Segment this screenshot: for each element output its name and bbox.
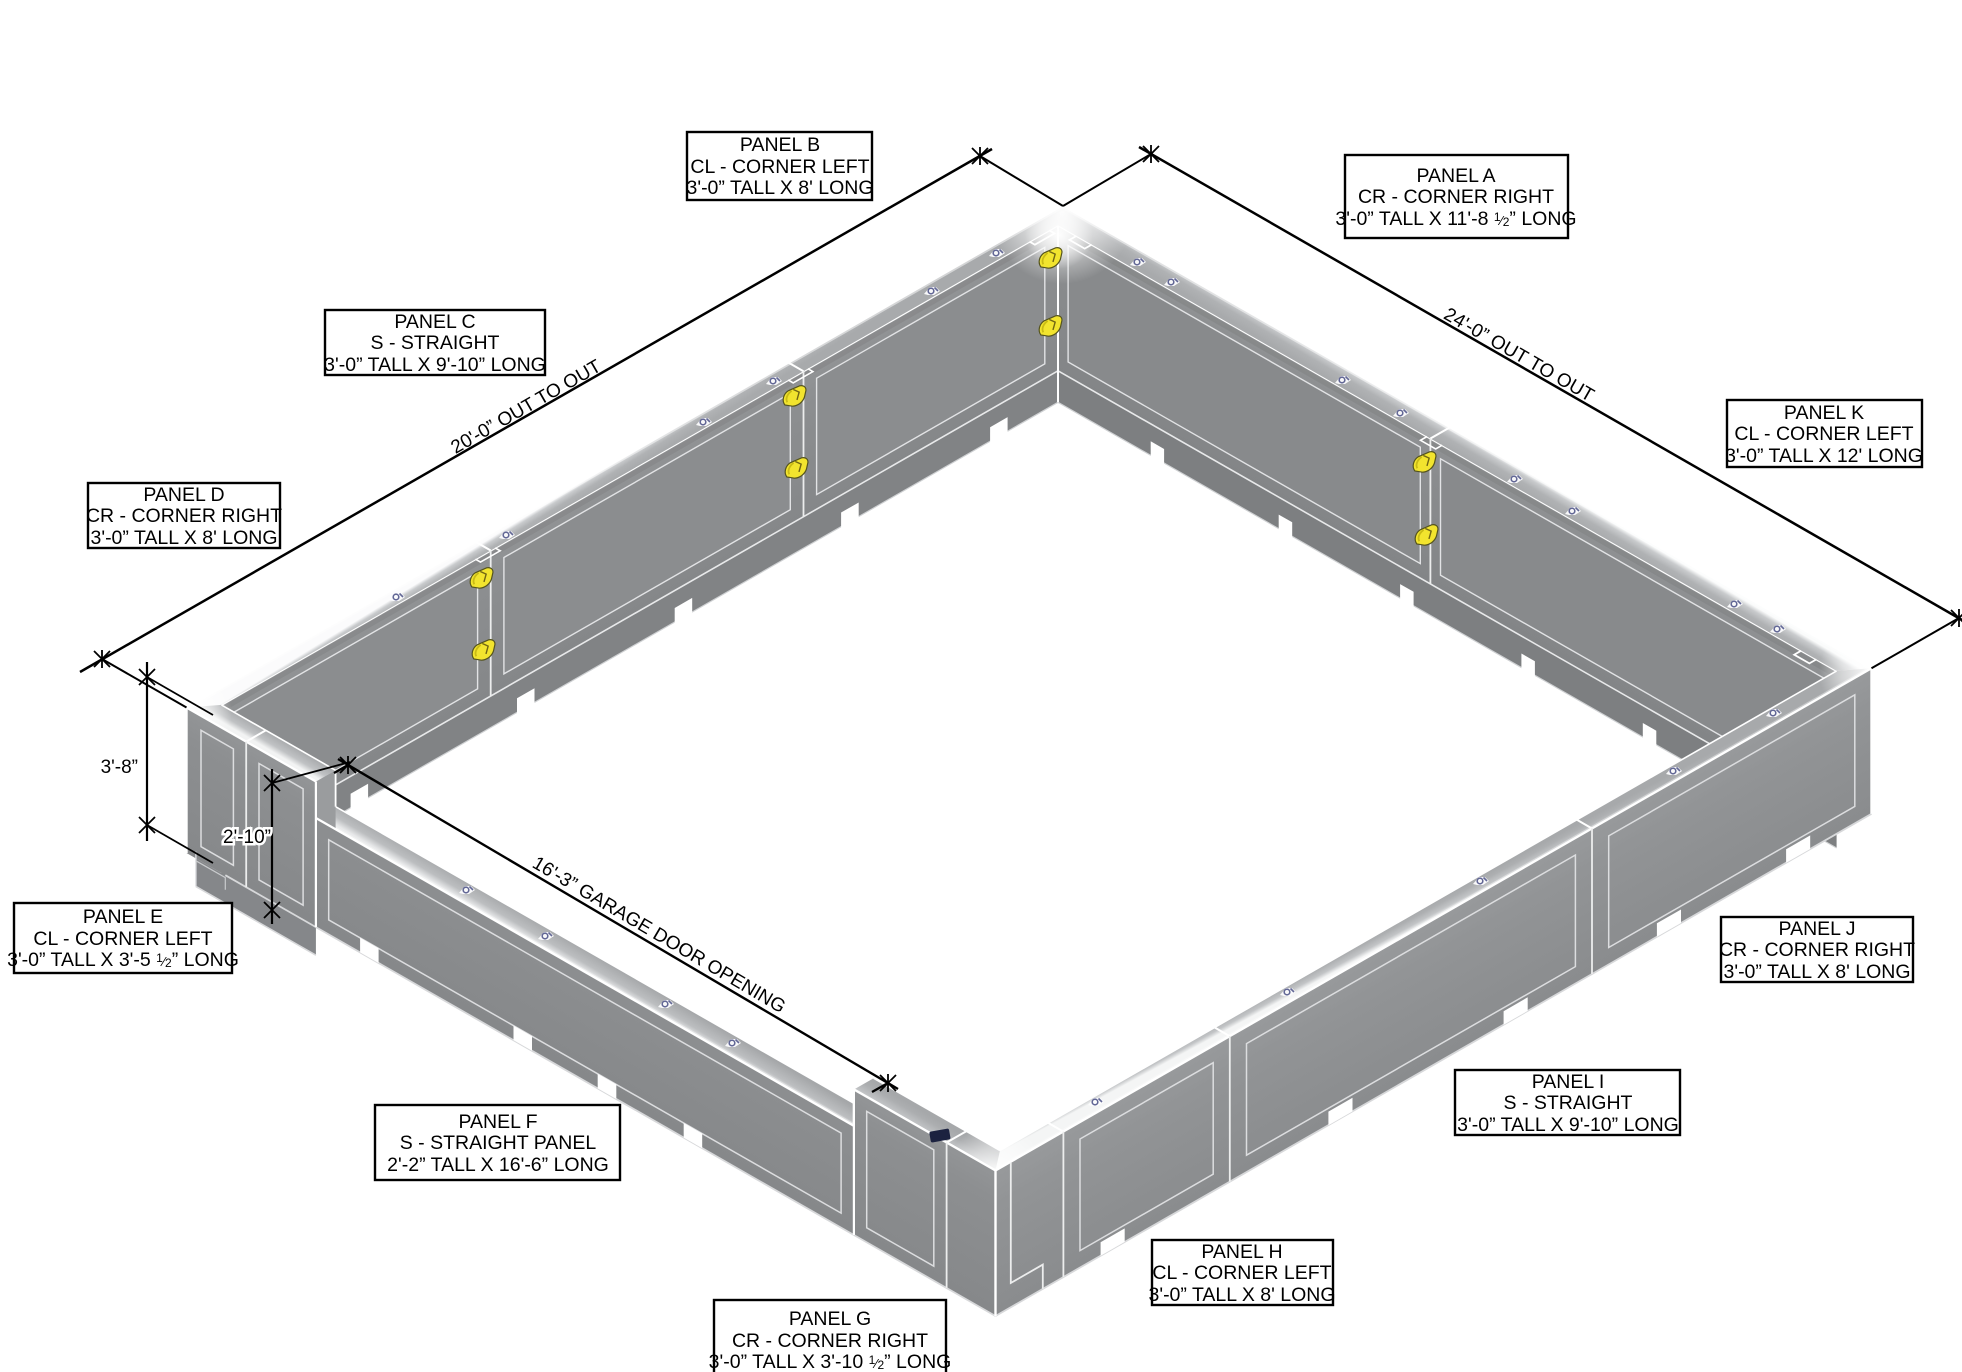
svg-text:S - STRAIGHT: S - STRAIGHT [1504, 1092, 1633, 1114]
svg-text:3'-0” TALL X 12' LONG: 3'-0” TALL X 12' LONG [1725, 445, 1923, 467]
svg-text:PANEL E: PANEL E [83, 906, 163, 928]
svg-text:PANEL K: PANEL K [1784, 402, 1864, 424]
svg-text:3'-0” TALL X 8' LONG: 3'-0” TALL X 8' LONG [91, 527, 278, 549]
svg-text:3'-0” TALL X 8' LONG: 3'-0” TALL X 8' LONG [1724, 961, 1911, 983]
svg-text:PANEL J: PANEL J [1779, 918, 1856, 940]
svg-text:3'-0” TALL X 3'-10 1⁄2” LONG: 3'-0” TALL X 3'-10 1⁄2” LONG [709, 1351, 952, 1372]
svg-text:2'-2” TALL X 16'-6” LONG: 2'-2” TALL X 16'-6” LONG [387, 1154, 609, 1176]
svg-text:3'-0” TALL X 9'-10” LONG: 3'-0” TALL X 9'-10” LONG [1457, 1114, 1679, 1136]
svg-text:3'-0” TALL X 8' LONG: 3'-0” TALL X 8' LONG [1149, 1284, 1336, 1306]
svg-text:CR - CORNER RIGHT: CR - CORNER RIGHT [86, 505, 282, 527]
svg-text:PANEL D: PANEL D [143, 484, 224, 506]
svg-text:2'-10”: 2'-10” [223, 827, 271, 848]
svg-text:CL - CORNER LEFT: CL - CORNER LEFT [1734, 423, 1913, 445]
svg-text:CR - CORNER RIGHT: CR - CORNER RIGHT [1719, 939, 1915, 961]
svg-text:CL - CORNER LEFT: CL - CORNER LEFT [690, 156, 869, 178]
svg-text:S - STRAIGHT: S - STRAIGHT [371, 332, 500, 354]
svg-text:CR - CORNER RIGHT: CR - CORNER RIGHT [1358, 186, 1554, 208]
svg-text:PANEL G: PANEL G [789, 1308, 871, 1330]
svg-text:PANEL C: PANEL C [394, 311, 475, 333]
svg-text:3'-0” TALL X 9'-10” LONG: 3'-0” TALL X 9'-10” LONG [324, 354, 546, 376]
svg-text:PANEL B: PANEL B [740, 134, 820, 156]
svg-text:PANEL I: PANEL I [1532, 1071, 1605, 1093]
svg-text:CL - CORNER LEFT: CL - CORNER LEFT [33, 928, 212, 950]
svg-text:PANEL F: PANEL F [458, 1111, 537, 1133]
svg-text:3'-8”: 3'-8” [101, 757, 138, 778]
svg-text:3'-0” TALL X 3'-5 1⁄2” LONG: 3'-0” TALL X 3'-5 1⁄2” LONG [7, 949, 239, 971]
svg-text:3'-0” TALL X 8' LONG: 3'-0” TALL X 8' LONG [687, 177, 874, 199]
svg-text:3'-0” TALL X 11'-8 1⁄2” LONG: 3'-0” TALL X 11'-8 1⁄2” LONG [1335, 208, 1576, 230]
svg-text:S - STRAIGHT PANEL: S - STRAIGHT PANEL [400, 1132, 597, 1154]
svg-text:PANEL A: PANEL A [1416, 165, 1495, 187]
svg-text:CR - CORNER RIGHT: CR - CORNER RIGHT [732, 1330, 928, 1352]
svg-text:CL - CORNER LEFT: CL - CORNER LEFT [1152, 1262, 1331, 1284]
svg-text:PANEL H: PANEL H [1201, 1241, 1282, 1263]
